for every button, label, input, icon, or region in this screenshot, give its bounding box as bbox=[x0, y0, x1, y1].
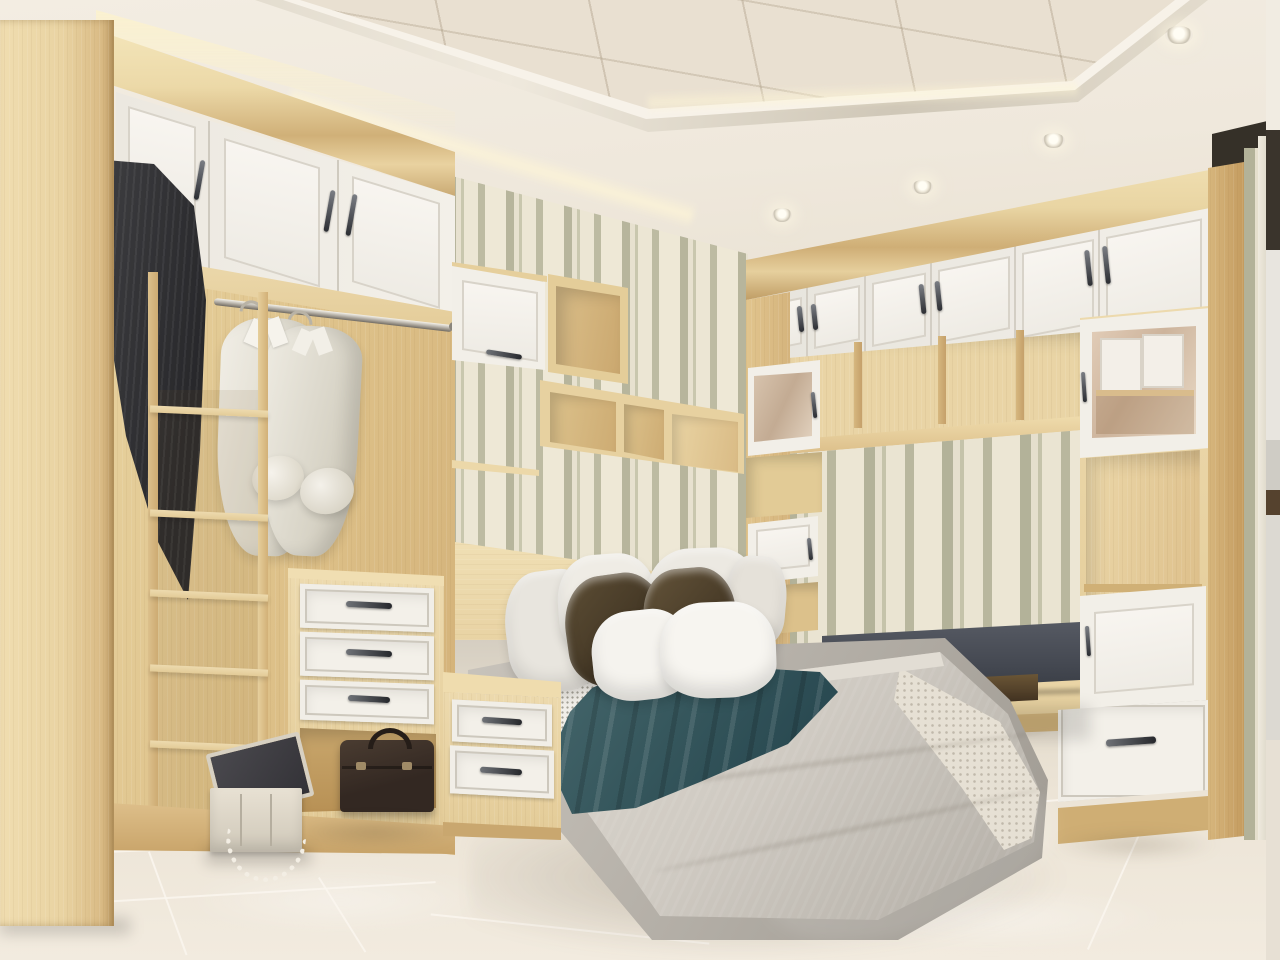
pillow-white-front-right bbox=[658, 600, 777, 700]
left-door-gap-1 bbox=[208, 121, 210, 269]
tower-drawer-3 bbox=[300, 680, 434, 725]
left-door-gap-2 bbox=[337, 160, 339, 291]
right-door-gap-1 bbox=[806, 286, 808, 357]
ceiling-spotlight-5 bbox=[1165, 26, 1193, 44]
flip-cabinet-panel bbox=[462, 280, 538, 362]
shelf-unit-cubby-3 bbox=[672, 412, 740, 474]
shelf-column-stile-left bbox=[148, 272, 158, 847]
left-wall-panel bbox=[0, 20, 114, 926]
ceiling-spotlight-2 bbox=[772, 208, 792, 222]
mini-open-box bbox=[746, 452, 822, 518]
glass-reflection-door-1 bbox=[1100, 338, 1142, 392]
bedroom-render bbox=[0, 0, 1280, 960]
right-cubby-divider-1 bbox=[854, 342, 862, 428]
tower-floor-shadow bbox=[290, 818, 460, 846]
tower-drawer-2 bbox=[300, 632, 434, 681]
rightcol-floor-shadow bbox=[1050, 832, 1220, 858]
glass-reflection-door-2 bbox=[1142, 334, 1184, 388]
right-door-gap-3 bbox=[930, 262, 932, 350]
ceiling-spotlight-3 bbox=[912, 180, 933, 194]
shelf-unit-cubby-2 bbox=[624, 402, 666, 462]
tower-drawer-1 bbox=[300, 584, 434, 633]
briefcase-clasp-2 bbox=[402, 762, 412, 770]
right-side-panel bbox=[1206, 158, 1246, 840]
right-door-gap-2 bbox=[864, 275, 866, 353]
right-open-niche bbox=[1082, 450, 1204, 596]
glass-reflection-shade bbox=[1096, 396, 1194, 434]
right-white-cabinet-panel bbox=[1094, 603, 1194, 694]
briefcase bbox=[340, 740, 434, 812]
right-door-panel-4 bbox=[938, 256, 1010, 343]
floor-vein-1 bbox=[180, 868, 500, 932]
adjacent-room-view bbox=[1266, 0, 1280, 960]
briefcase-clasp-1 bbox=[356, 762, 366, 770]
right-cubby-divider-2 bbox=[938, 336, 946, 424]
right-door-panel-2 bbox=[814, 285, 860, 349]
right-door-panel-3 bbox=[872, 273, 926, 347]
float-cubby-inner bbox=[556, 284, 622, 376]
ceiling-spotlight-4 bbox=[1042, 133, 1065, 148]
right-cubby-divider-3 bbox=[1016, 330, 1024, 420]
mini-glass-pane bbox=[754, 372, 812, 442]
